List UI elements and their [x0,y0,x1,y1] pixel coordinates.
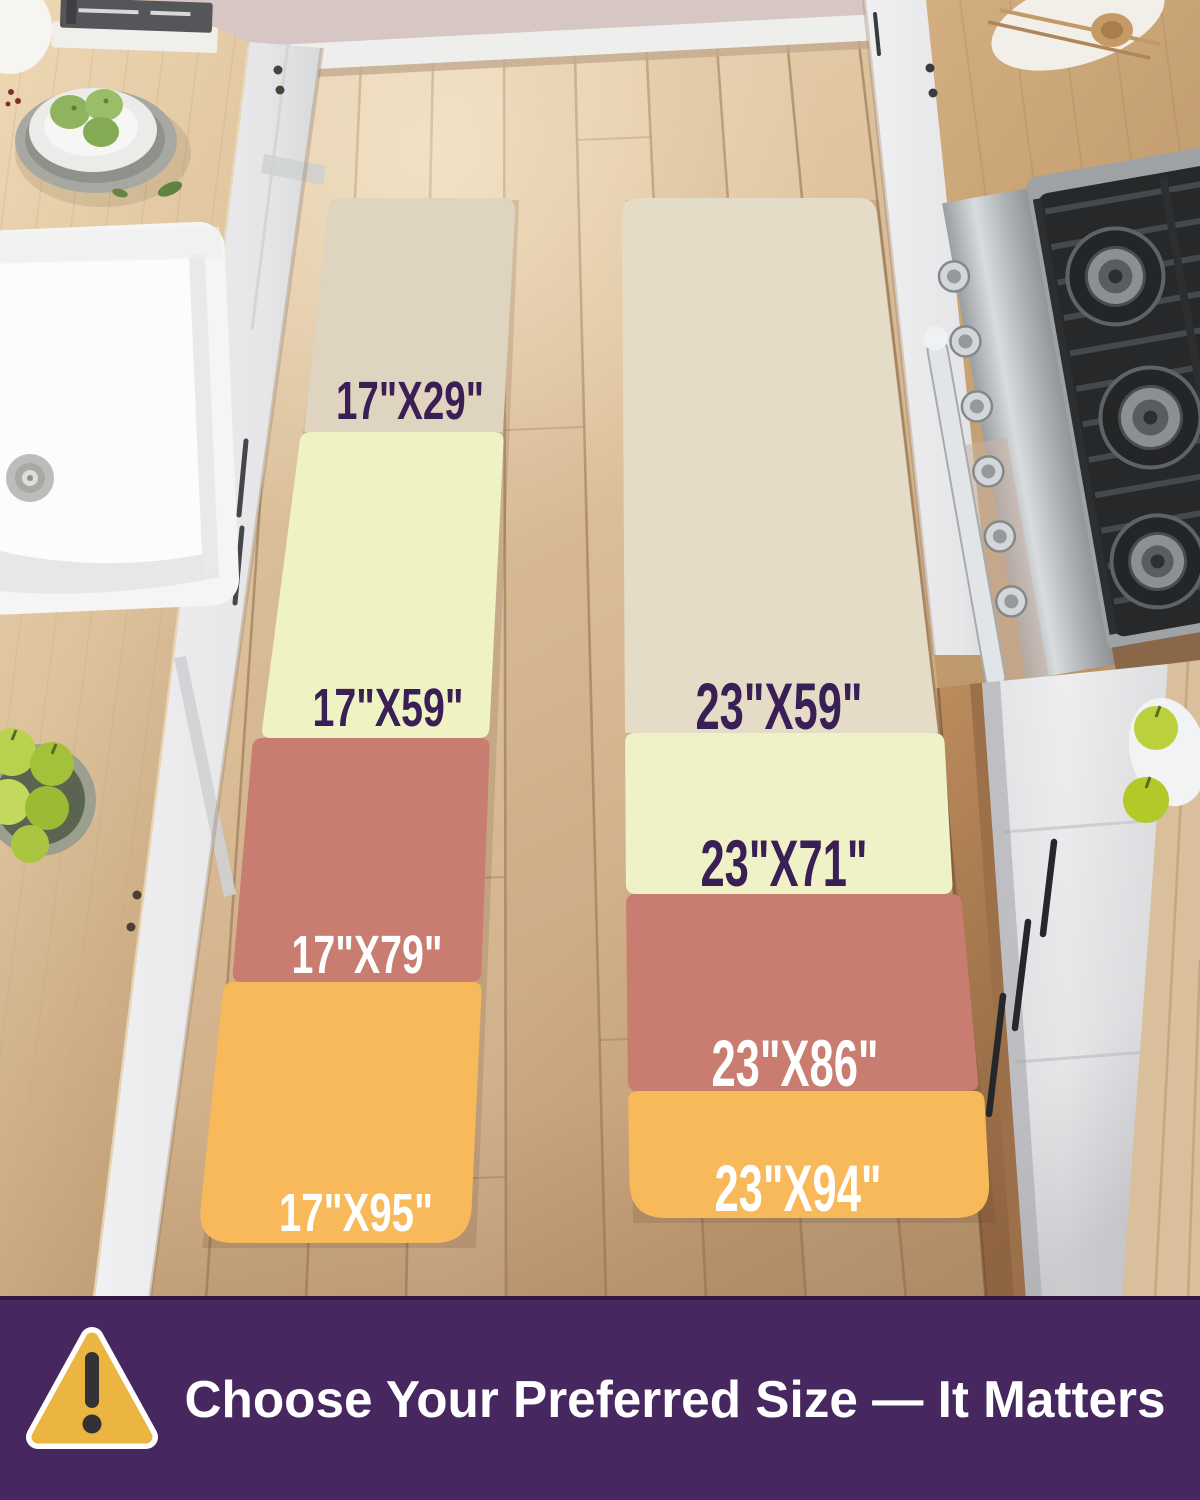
svg-text:17"X29": 17"X29" [336,371,484,431]
svg-text:23"X59": 23"X59" [696,669,863,743]
svg-text:23"X86": 23"X86" [712,1026,879,1100]
svg-text:Choose Your Preferred Size — I: Choose Your Preferred Size — It Matters [185,1371,1166,1429]
svg-text:23"X94": 23"X94" [715,1151,882,1225]
svg-text:17"X59": 17"X59" [313,678,464,738]
svg-text:23"X71": 23"X71" [701,826,868,900]
svg-text:17"X79": 17"X79" [292,925,443,985]
svg-text:17"X95": 17"X95" [279,1183,433,1243]
